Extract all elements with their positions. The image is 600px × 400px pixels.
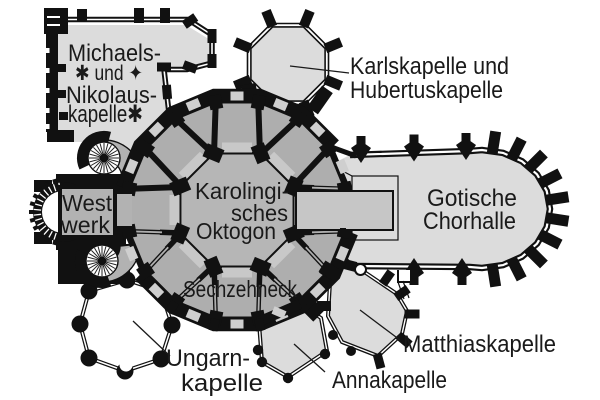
svg-text:Sechzehneck: Sechzehneck [183, 276, 297, 302]
svg-text:Karlskapelle und: Karlskapelle und [350, 53, 509, 80]
svg-text:Annakapelle: Annakapelle [332, 367, 447, 394]
svg-text:kapelle: kapelle [181, 370, 263, 397]
svg-text:Matthiaskapelle: Matthiaskapelle [403, 331, 556, 358]
svg-text:Chorhalle: Chorhalle [423, 208, 516, 235]
svg-text:Hubertuskapelle: Hubertuskapelle [350, 77, 503, 104]
svg-text:Oktogon: Oktogon [196, 218, 276, 244]
svg-text:werk: werk [60, 212, 111, 238]
svg-text:kapelle✱: kapelle✱ [68, 101, 143, 128]
svg-text:Ungarn-: Ungarn- [166, 345, 250, 372]
